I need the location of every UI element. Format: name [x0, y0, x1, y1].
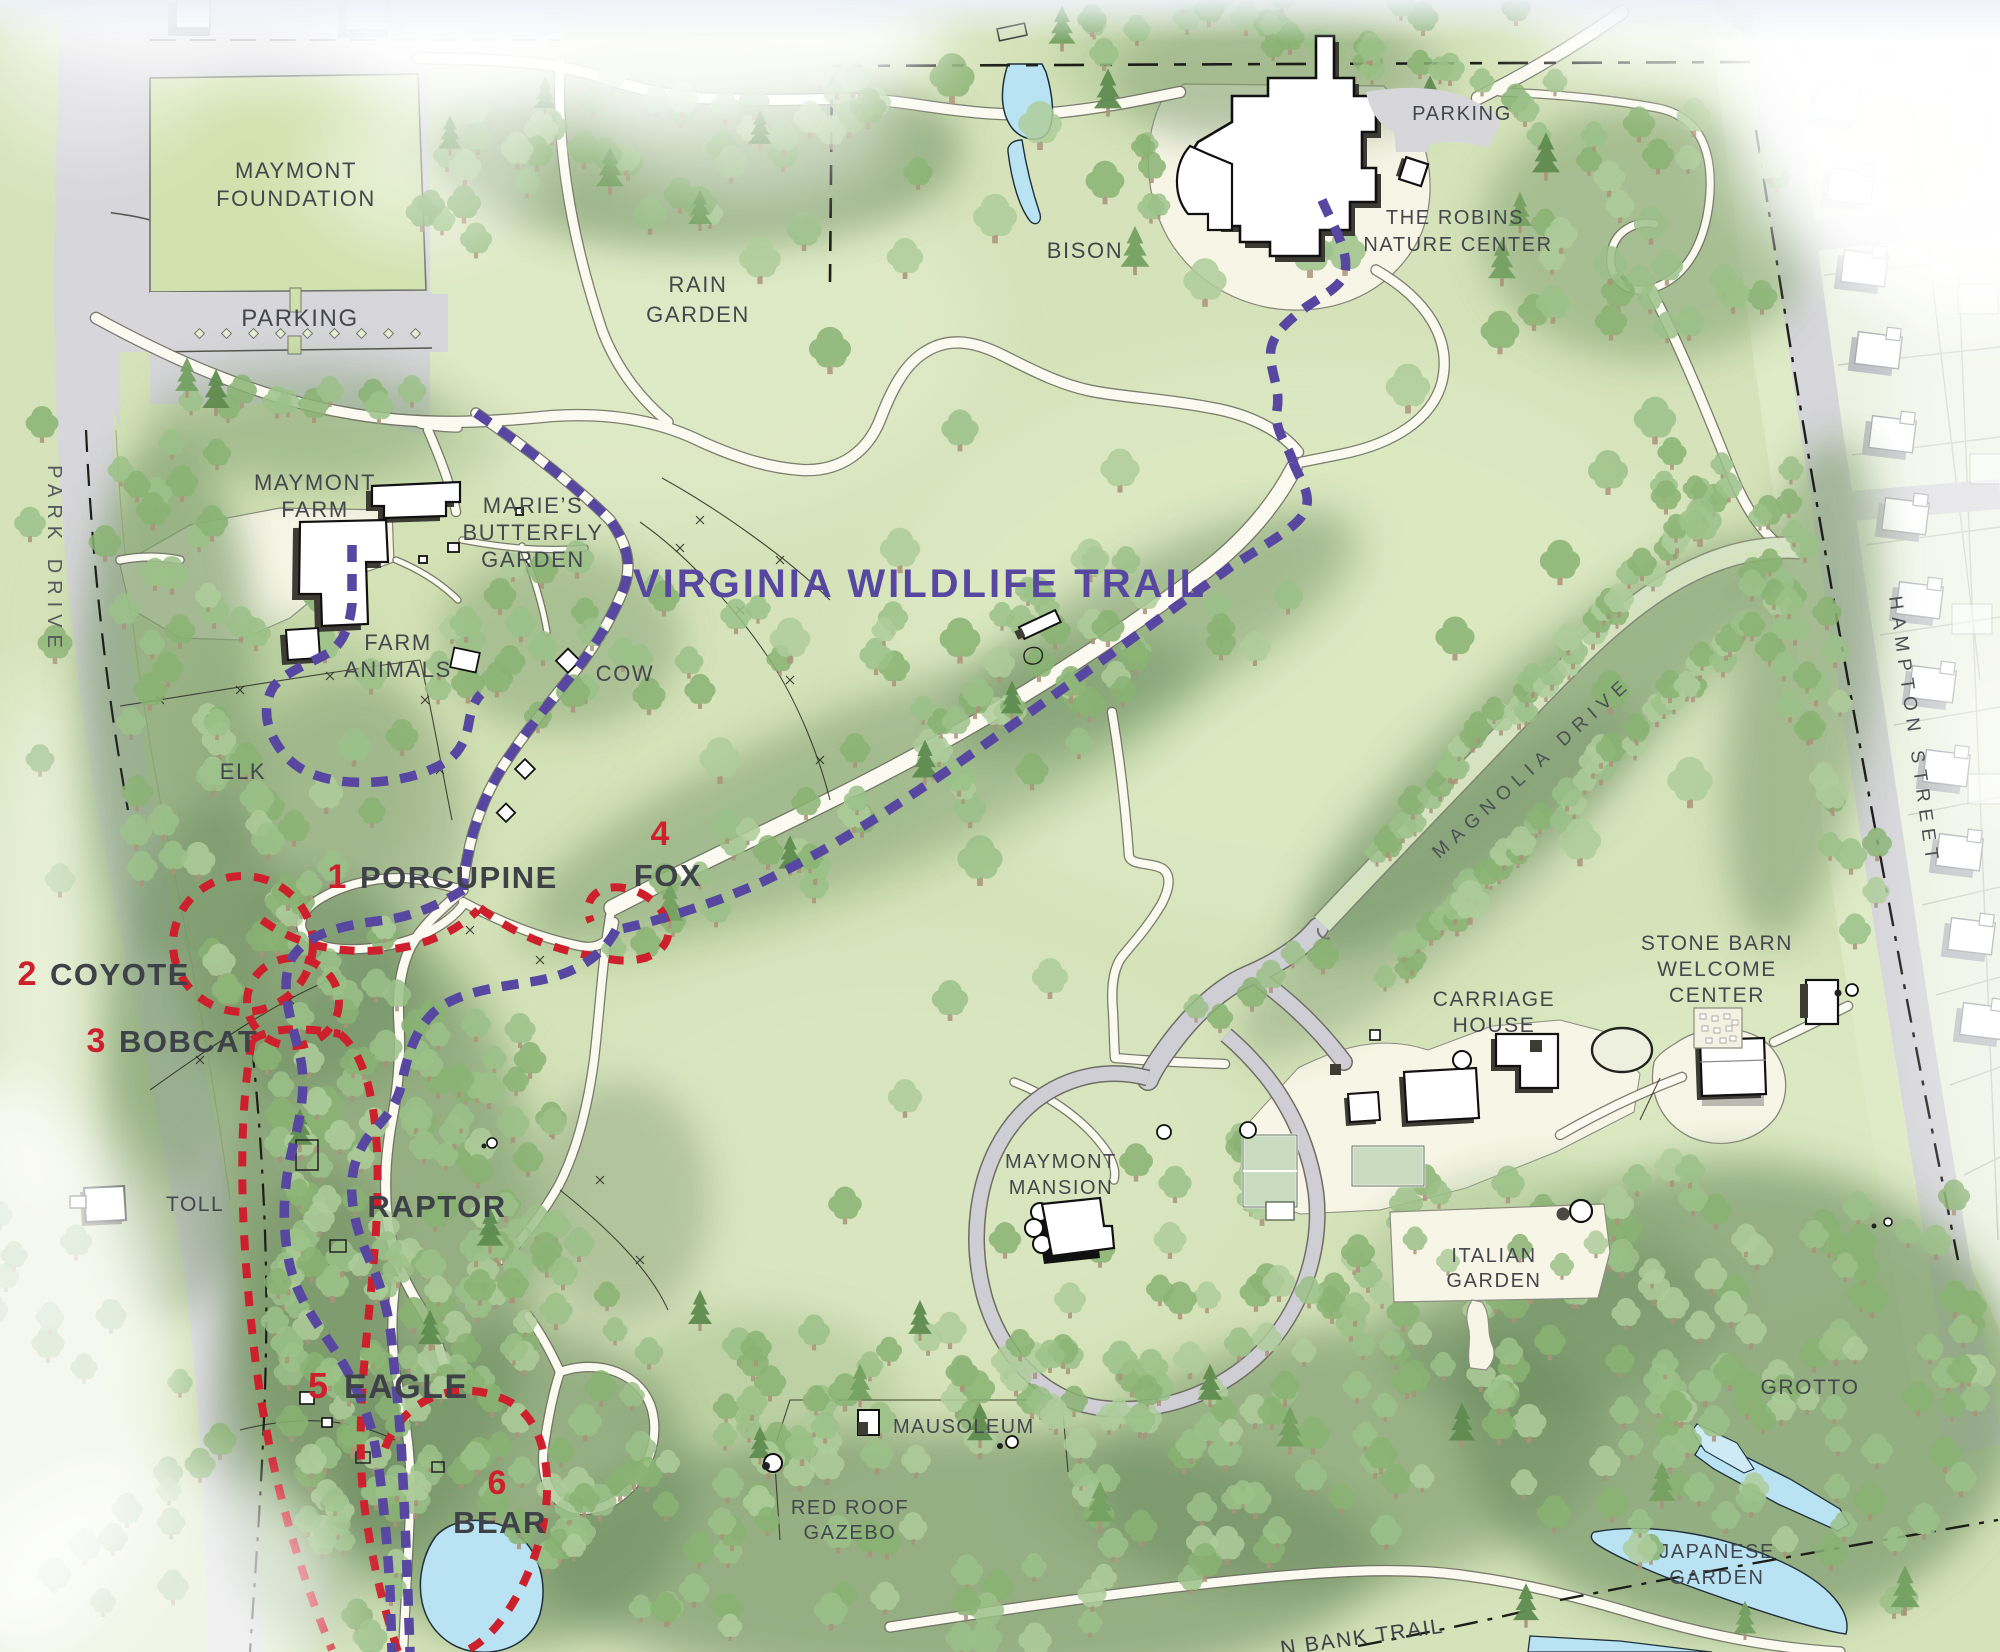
svg-text:PARK DRIVE: PARK DRIVE — [43, 465, 65, 655]
svg-text:PORCUPINE: PORCUPINE — [360, 860, 558, 895]
svg-text:GROTTO: GROTTO — [1760, 1376, 1859, 1399]
svg-text:FARM: FARM — [364, 630, 432, 655]
svg-text:RAIN: RAIN — [669, 272, 728, 297]
svg-text:GARDEN: GARDEN — [646, 302, 750, 327]
svg-text:GARDEN: GARDEN — [481, 547, 585, 572]
svg-text:COYOTE: COYOTE — [50, 957, 190, 992]
svg-text:EAGLE: EAGLE — [344, 1368, 469, 1406]
svg-text:MAYMONT: MAYMONT — [254, 470, 376, 495]
svg-text:WELCOME: WELCOME — [1657, 958, 1777, 981]
svg-text:HOUSE: HOUSE — [1453, 1014, 1536, 1037]
svg-text:MAYMONT: MAYMONT — [1005, 1151, 1117, 1173]
svg-text:CARRIAGE: CARRIAGE — [1433, 988, 1556, 1011]
svg-text:JAPANESE: JAPANESE — [1659, 1541, 1775, 1563]
svg-text:4: 4 — [651, 815, 670, 853]
svg-text:BUTTERFLY: BUTTERFLY — [462, 520, 603, 545]
svg-text:6: 6 — [488, 1464, 507, 1502]
svg-text:VIRGINIA WILDLIFE TRAIL: VIRGINIA WILDLIFE TRAIL — [633, 562, 1207, 606]
svg-text:FOUNDATION: FOUNDATION — [216, 186, 376, 211]
svg-text:GARDEN: GARDEN — [1669, 1567, 1764, 1589]
svg-text:TOLL: TOLL — [166, 1193, 224, 1216]
svg-text:ANIMALS: ANIMALS — [344, 657, 452, 682]
svg-text:1: 1 — [328, 858, 347, 896]
svg-text:BOBCAT: BOBCAT — [119, 1024, 258, 1059]
svg-text:3: 3 — [87, 1022, 106, 1060]
svg-text:RAPTOR: RAPTOR — [367, 1189, 506, 1224]
svg-text:MAUSOLEUM: MAUSOLEUM — [893, 1416, 1035, 1438]
svg-text:MAYMONT: MAYMONT — [235, 158, 357, 183]
svg-text:GARDEN: GARDEN — [1446, 1270, 1541, 1292]
svg-text:FARM: FARM — [281, 497, 349, 522]
svg-text:MARIE’S: MARIE’S — [483, 493, 583, 518]
svg-text:STONE BARN: STONE BARN — [1641, 932, 1793, 955]
svg-text:COW: COW — [596, 661, 655, 686]
svg-text:CENTER: CENTER — [1669, 984, 1765, 1007]
svg-text:RED ROOF: RED ROOF — [791, 1497, 909, 1519]
svg-text:THE ROBINS: THE ROBINS — [1386, 207, 1524, 229]
svg-text:ELK: ELK — [220, 759, 266, 784]
svg-text:2: 2 — [18, 955, 37, 993]
svg-text:FOX: FOX — [634, 858, 702, 893]
svg-text:5: 5 — [308, 1365, 328, 1406]
svg-text:BEAR: BEAR — [453, 1505, 547, 1540]
svg-text:BISON: BISON — [1047, 238, 1123, 263]
svg-text:ITALIAN: ITALIAN — [1451, 1245, 1536, 1267]
svg-text:PARKING: PARKING — [1412, 103, 1512, 125]
svg-text:GAZEBO: GAZEBO — [804, 1522, 897, 1544]
svg-text:PARKING: PARKING — [241, 305, 358, 332]
svg-text:MANSION: MANSION — [1009, 1177, 1114, 1199]
svg-text:NATURE CENTER: NATURE CENTER — [1363, 234, 1552, 256]
